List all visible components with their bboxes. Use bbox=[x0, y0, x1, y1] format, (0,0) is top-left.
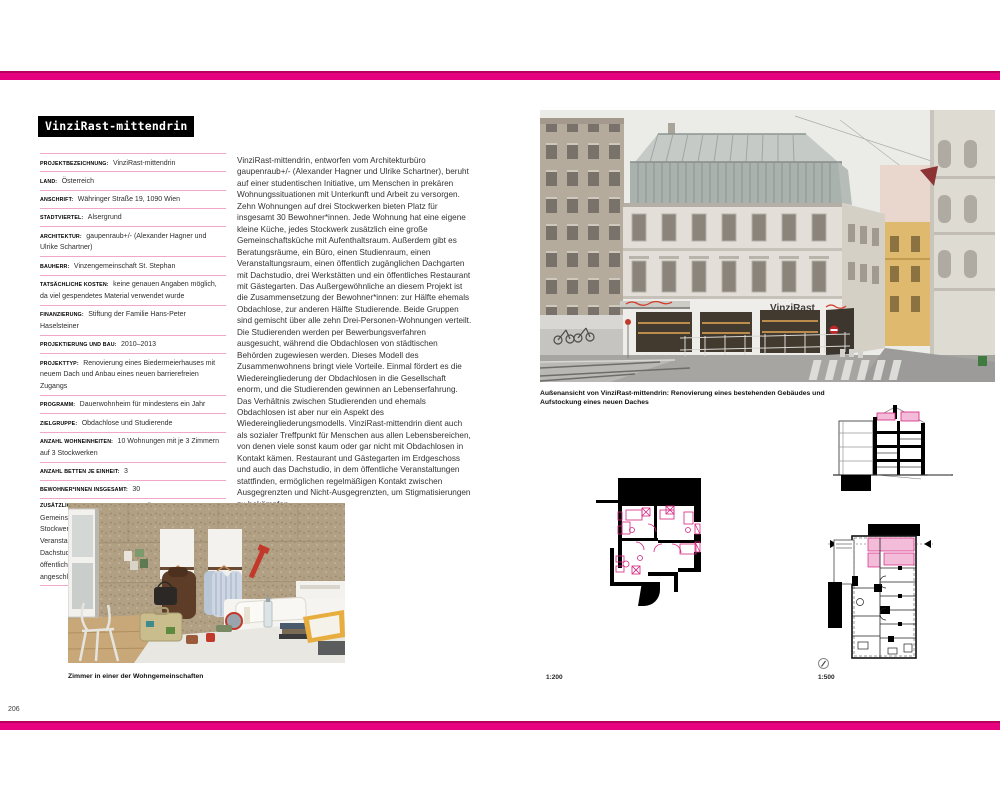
meta-value: 30 bbox=[132, 486, 140, 493]
building-photo-graphic: VinziRast bbox=[540, 110, 995, 382]
project-title: VinziRast-mittendrin bbox=[38, 116, 194, 137]
meta-value: 2010–2013 bbox=[121, 341, 156, 348]
plan-200-scale-label: 1:200 bbox=[546, 674, 563, 681]
meta-row: ARCHITEKTUR: gaupenraub+/- (Alexander Ha… bbox=[40, 226, 226, 256]
meta-row: BAUHERR: Vinzengemeinschaft St. Stephan bbox=[40, 256, 226, 274]
meta-value: 3 bbox=[124, 468, 128, 475]
meta-label: ARCHITEKTUR: bbox=[40, 234, 82, 240]
meta-row: ZIELGRUPPE: Obdachlose und Studierende bbox=[40, 413, 226, 431]
meta-label: LAND: bbox=[40, 179, 57, 185]
meta-label: ANSCHRIFT: bbox=[40, 197, 73, 203]
meta-value: Österreich bbox=[62, 178, 94, 185]
meta-value: VinziRast-mittendrin bbox=[113, 160, 176, 167]
meta-label: STADTVIERTEL: bbox=[40, 215, 83, 221]
meta-label: TATSÄCHLICHE KOSTEN: bbox=[40, 282, 109, 288]
building-sign-text: VinziRast bbox=[770, 303, 815, 314]
meta-row: ANZAHL BETTEN JE EINHEIT: 3 bbox=[40, 462, 226, 480]
plan-500-scale-label: 1:500 bbox=[818, 674, 835, 681]
meta-value: Obdachlose und Studierende bbox=[82, 420, 173, 427]
meta-row: STADTVIERTEL: Alsergrund bbox=[40, 208, 226, 226]
building-photo-caption: Außenansicht von VinziRast-mittendrin: R… bbox=[540, 389, 850, 407]
meta-value: Alsergrund bbox=[88, 214, 122, 221]
meta-row: BEWOHNER*INNEN INSGESAMT: 30 bbox=[40, 480, 226, 498]
meta-row: FINANZIERUNG: Stiftung der Familie Hans-… bbox=[40, 305, 226, 335]
north-arrow-icon bbox=[817, 657, 830, 670]
floor-plan-500 bbox=[828, 524, 933, 664]
building-photo: VinziRast bbox=[540, 110, 995, 382]
meta-row: ANZAHL WOHNEINHEITEN: 10 Wohnungen mit j… bbox=[40, 432, 226, 462]
meta-label: ANZAHL WOHNEINHEITEN: bbox=[40, 439, 113, 445]
top-accent-bar bbox=[0, 71, 1000, 80]
bottom-accent-bar bbox=[0, 721, 1000, 730]
meta-row: PROJEKTTYP: Renovierung eines Biedermeie… bbox=[40, 353, 226, 395]
room-photo-caption: Zimmer in einer der Wohngemeinschaften bbox=[68, 672, 348, 681]
room-photo-graphic bbox=[68, 503, 345, 663]
meta-value: Vinzengemeinschaft St. Stephan bbox=[74, 263, 175, 270]
meta-row: PROJEKTBEZEICHNUNG: VinziRast-mittendrin bbox=[40, 153, 226, 171]
meta-label: ANZAHL BETTEN JE EINHEIT: bbox=[40, 469, 120, 475]
meta-value: Dauerwohnheim für mindestens ein Jahr bbox=[80, 401, 206, 408]
meta-row: PROJEKTIERUNG UND BAU: 2010–2013 bbox=[40, 335, 226, 353]
meta-label: PROJEKTTYP: bbox=[40, 361, 79, 367]
meta-label: ZIELGRUPPE: bbox=[40, 421, 77, 427]
body-text: VinziRast-mittendrin, entworfen vom Arch… bbox=[237, 155, 472, 510]
meta-row: PROGRAMM: Dauerwohnheim für mindestens e… bbox=[40, 395, 226, 413]
meta-label: PROGRAMM: bbox=[40, 402, 75, 408]
meta-label: BAUHERR: bbox=[40, 264, 69, 270]
meta-value: Währinger Straße 19, 1090 Wien bbox=[78, 196, 180, 203]
meta-label: BEWOHNER*INNEN INSGESAMT: bbox=[40, 487, 128, 493]
floor-plan-200 bbox=[596, 478, 721, 608]
meta-label: PROJEKTBEZEICHNUNG: bbox=[40, 161, 108, 167]
meta-label: PROJEKTIERUNG UND BAU: bbox=[40, 342, 117, 348]
book-spread: 206 VinziRast-mittendrin PROJEKTBEZEICHN… bbox=[0, 0, 1000, 800]
room-photo bbox=[68, 503, 345, 663]
meta-row: ANSCHRIFT: Währinger Straße 19, 1090 Wie… bbox=[40, 190, 226, 208]
meta-label: FINANZIERUNG: bbox=[40, 312, 84, 318]
meta-row: TATSÄCHLICHE KOSTEN: keine genauen Angab… bbox=[40, 275, 226, 305]
page-number: 206 bbox=[8, 706, 20, 713]
meta-row: LAND: Österreich bbox=[40, 171, 226, 189]
section-drawing bbox=[833, 405, 953, 497]
